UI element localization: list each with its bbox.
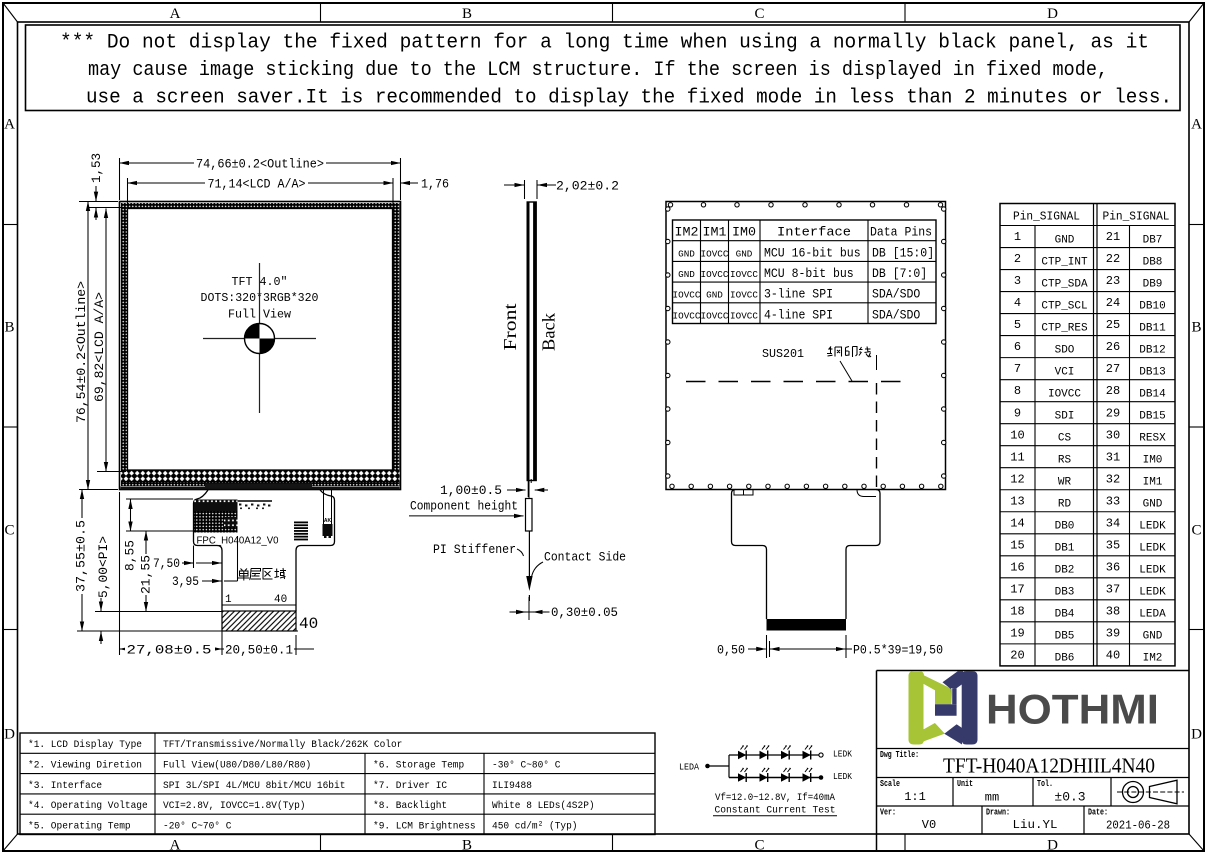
svg-text:TFT/Transmissive/Normally Blac: TFT/Transmissive/Normally Black/262K Col…: [163, 739, 402, 751]
svg-text:Interface: Interface: [777, 226, 851, 240]
svg-text:2,02±0.2: 2,02±0.2: [556, 180, 619, 194]
svg-text:2021-06-28: 2021-06-28: [1106, 819, 1170, 833]
svg-text:36: 36: [1106, 560, 1120, 574]
svg-text:A: A: [4, 117, 15, 133]
svg-text:*1. LCD Display Type: *1. LCD Display Type: [28, 739, 142, 751]
svg-text:IM1: IM1: [1143, 477, 1163, 489]
svg-text:MCU 8-bit bus: MCU 8-bit bus: [764, 267, 854, 281]
svg-text:DB14: DB14: [1139, 388, 1166, 400]
svg-text:1,53: 1,53: [90, 153, 104, 183]
svg-text:40: 40: [1106, 648, 1120, 662]
svg-text:P0.5*39=19,50: P0.5*39=19,50: [853, 644, 943, 658]
svg-text:IOVCC: IOVCC: [701, 269, 729, 280]
svg-text:1: 1: [225, 594, 232, 606]
svg-text:16: 16: [1010, 560, 1024, 574]
svg-text:-30° C~80° C: -30° C~80° C: [492, 760, 560, 772]
svg-text:DB7: DB7: [1143, 234, 1163, 246]
svg-text:1,00±0.5: 1,00±0.5: [440, 484, 502, 498]
svg-text:IOVCC: IOVCC: [730, 269, 758, 280]
svg-text:A: A: [170, 6, 181, 22]
svg-text:8,55: 8,55: [123, 540, 138, 571]
svg-text:19: 19: [1010, 626, 1024, 640]
svg-text:may cause image sticking due t: may cause image sticking due to the LCM …: [88, 59, 1108, 82]
svg-text:1: 1: [1014, 230, 1021, 244]
svg-text:Full View(U80/D80/L80/R80): Full View(U80/D80/L80/R80): [163, 760, 311, 772]
svg-text:HOTHMI: HOTHMI: [986, 686, 1159, 733]
svg-text:Drawn:: Drawn:: [986, 808, 1010, 818]
svg-text:DB10: DB10: [1139, 300, 1165, 312]
svg-text:DB9: DB9: [1143, 278, 1163, 290]
svg-text:2: 2: [1014, 252, 1021, 266]
svg-text:32: 32: [1106, 472, 1120, 486]
svg-text:DB [15:0]: DB [15:0]: [872, 246, 934, 260]
svg-text:3,95: 3,95: [172, 575, 199, 589]
svg-text:DB12: DB12: [1139, 344, 1165, 356]
svg-text:450 cd/m² (Typ): 450 cd/m² (Typ): [492, 820, 578, 832]
svg-text:5,00<PI>: 5,00<PI>: [96, 536, 111, 598]
svg-text:White 8 LEDs(4S2P): White 8 LEDs(4S2P): [492, 800, 595, 812]
svg-text:mm: mm: [985, 791, 999, 805]
svg-text:SPI 3L/SPI 4L/MCU 8bit/MCU 16b: SPI 3L/SPI 4L/MCU 8bit/MCU 16bit: [163, 780, 345, 792]
svg-text:37: 37: [1106, 582, 1120, 596]
svg-text:7,50: 7,50: [153, 557, 180, 571]
svg-text:IM0: IM0: [732, 226, 756, 240]
svg-text:27,08±0.5: 27,08±0.5: [127, 644, 212, 658]
svg-text:21: 21: [1106, 230, 1120, 244]
svg-text:*2. Viewing Diretion: *2. Viewing Diretion: [28, 760, 142, 772]
svg-text:GND: GND: [678, 248, 695, 259]
svg-text:11: 11: [1010, 450, 1024, 464]
svg-text:40: 40: [274, 594, 287, 606]
svg-text:DB13: DB13: [1139, 366, 1165, 378]
svg-text:Contact Side: Contact Side: [544, 551, 626, 565]
svg-text:CTP_RES: CTP_RES: [1041, 322, 1088, 334]
svg-text:20,50±0.1: 20,50±0.1: [225, 644, 293, 658]
svg-text:21,55: 21,55: [139, 555, 154, 594]
svg-text:V0: V0: [922, 818, 936, 832]
svg-text:LEDK: LEDK: [1139, 587, 1166, 599]
svg-text:B: B: [4, 320, 14, 336]
svg-text:LEDA: LEDA: [1139, 609, 1166, 621]
svg-text:39: 39: [1106, 626, 1120, 640]
svg-text:10: 10: [1010, 428, 1024, 442]
svg-text:DB6: DB6: [1055, 653, 1075, 665]
svg-text:37,55±0.5: 37,55±0.5: [74, 520, 89, 592]
svg-text:B: B: [1191, 320, 1201, 336]
svg-text:CTP_SDA: CTP_SDA: [1041, 278, 1088, 290]
svg-text:TFT-H040A12DHIIL4N40: TFT-H040A12DHIIL4N40: [943, 754, 1155, 778]
svg-text:GND: GND: [1143, 499, 1163, 511]
svg-text:C: C: [754, 6, 764, 22]
svg-text:Liu.YL: Liu.YL: [1013, 818, 1058, 832]
svg-text:Back: Back: [539, 313, 559, 351]
svg-text:D: D: [4, 727, 15, 743]
svg-text:SDA/SDO: SDA/SDO: [872, 288, 920, 302]
svg-text:CS: CS: [1058, 432, 1072, 444]
svg-text:AK: AK: [324, 518, 332, 524]
svg-text:use a screen saver.It is recom: use a screen saver.It is recommended to …: [86, 87, 1172, 110]
svg-text:30: 30: [1106, 428, 1120, 442]
svg-text:SDO: SDO: [1055, 344, 1075, 356]
svg-text:5: 5: [1014, 318, 1021, 332]
svg-text:17: 17: [1010, 582, 1024, 596]
svg-text:SUS201: SUS201: [762, 347, 804, 361]
svg-text:1:1: 1:1: [904, 790, 926, 804]
svg-text:LEDK: LEDK: [1139, 543, 1166, 555]
svg-text:Unit: Unit: [957, 779, 973, 789]
svg-text:GND: GND: [1143, 631, 1163, 643]
svg-text:-20° C~70° C: -20° C~70° C: [163, 820, 231, 832]
svg-text:12: 12: [1010, 472, 1024, 486]
svg-text:B: B: [462, 838, 472, 854]
svg-text:29: 29: [1106, 406, 1120, 420]
svg-text:40: 40: [299, 615, 318, 633]
svg-text:25: 25: [1106, 318, 1120, 332]
svg-text:DB0: DB0: [1055, 521, 1075, 533]
svg-text:4-line SPI: 4-line SPI: [764, 308, 833, 322]
svg-text:ILI9488: ILI9488: [492, 781, 532, 792]
svg-text:Pin_SIGNAL: Pin_SIGNAL: [1013, 211, 1080, 224]
svg-text:DB [7:0]: DB [7:0]: [872, 267, 927, 281]
svg-text:*3. Interface: *3. Interface: [28, 780, 102, 792]
svg-text:*9. LCM Brightness: *9. LCM Brightness: [373, 820, 476, 832]
svg-text:3-line SPI: 3-line SPI: [764, 288, 833, 302]
svg-text:CTP_SCL: CTP_SCL: [1041, 300, 1087, 312]
svg-text:24: 24: [1106, 296, 1120, 310]
svg-text:3: 3: [1014, 274, 1021, 288]
svg-text:MCU 16-bit bus: MCU 16-bit bus: [764, 246, 861, 260]
svg-text:74,66±0.2<Outline>: 74,66±0.2<Outline>: [196, 158, 324, 172]
svg-text:*4. Operating Voltage: *4. Operating Voltage: [28, 800, 148, 812]
svg-text:GND: GND: [1055, 234, 1075, 246]
svg-text:4: 4: [1014, 296, 1021, 310]
svg-text:IOVCC: IOVCC: [730, 310, 758, 321]
svg-text:*6. Storage Temp: *6. Storage Temp: [373, 760, 464, 772]
svg-text:RESX: RESX: [1139, 432, 1166, 444]
svg-text:26: 26: [1106, 340, 1120, 354]
svg-text:IOVCC: IOVCC: [701, 248, 729, 259]
svg-text:Front: Front: [500, 304, 520, 351]
svg-text:9: 9: [1014, 406, 1021, 420]
svg-text:DB1: DB1: [1055, 543, 1075, 555]
svg-text:Component height: Component height: [410, 500, 518, 514]
svg-text:76,54±0.2<Outline>: 76,54±0.2<Outline>: [74, 281, 89, 423]
svg-text:Constant Current Test: Constant Current Test: [715, 805, 836, 817]
svg-text:IM2: IM2: [1143, 653, 1163, 665]
svg-text:15: 15: [1010, 538, 1024, 552]
svg-text:RD: RD: [1058, 499, 1072, 511]
svg-text:CTP_INT: CTP_INT: [1041, 256, 1088, 268]
svg-text:33: 33: [1106, 494, 1120, 508]
svg-text:71,14<LCD A/A>: 71,14<LCD A/A>: [208, 178, 306, 192]
svg-text:38: 38: [1106, 604, 1120, 618]
svg-text:0,30±0.05: 0,30±0.05: [551, 606, 618, 620]
svg-text:SDA/SDO: SDA/SDO: [872, 308, 920, 322]
svg-text:6: 6: [1014, 340, 1021, 354]
svg-text:GND: GND: [706, 290, 723, 301]
svg-text:Scale: Scale: [880, 779, 900, 789]
svg-text:C: C: [754, 838, 764, 854]
svg-text:*5. Operating Temp: *5. Operating Temp: [28, 820, 131, 832]
svg-text:DB15: DB15: [1139, 410, 1165, 422]
svg-text:IM0: IM0: [1143, 455, 1163, 467]
svg-text:31: 31: [1106, 450, 1120, 464]
svg-text:Date:: Date:: [1088, 808, 1108, 818]
svg-text:*** Do not display the fixed p: *** Do not display the fixed pattern for…: [60, 32, 1149, 55]
svg-text:LEDK: LEDK: [833, 771, 852, 782]
svg-text:GND: GND: [736, 248, 753, 259]
svg-text:Vf=12.0~12.8V, If=40mA: Vf=12.0~12.8V, If=40mA: [715, 792, 836, 804]
svg-text:C: C: [4, 523, 14, 539]
svg-text:IOVCC: IOVCC: [701, 310, 729, 321]
svg-text:B: B: [462, 6, 472, 22]
svg-text:14: 14: [1010, 516, 1024, 530]
svg-text:22: 22: [1106, 252, 1120, 266]
svg-text:Tol.: Tol.: [1037, 779, 1053, 789]
svg-text:Ver:: Ver:: [880, 808, 896, 818]
svg-text:DB11: DB11: [1139, 322, 1166, 334]
svg-text:8: 8: [1014, 384, 1021, 398]
svg-text:Dwg Title:: Dwg Title:: [880, 750, 919, 760]
svg-text:A: A: [170, 838, 181, 854]
svg-text:28: 28: [1106, 384, 1120, 398]
svg-text:WR: WR: [1058, 477, 1072, 489]
svg-text:18: 18: [1010, 604, 1024, 618]
svg-text:0,50: 0,50: [717, 644, 745, 658]
svg-text:Data Pins: Data Pins: [870, 226, 932, 240]
svg-text:DB4: DB4: [1055, 609, 1075, 621]
svg-text:IOVCC: IOVCC: [673, 310, 701, 321]
svg-text:LEDK: LEDK: [1139, 565, 1166, 577]
svg-text:DB5: DB5: [1055, 631, 1075, 643]
svg-text:±0.3: ±0.3: [1054, 790, 1085, 805]
svg-text:*8. Backlight: *8. Backlight: [373, 800, 447, 812]
svg-text:Pin_SIGNAL: Pin_SIGNAL: [1103, 211, 1170, 224]
svg-text:D: D: [1191, 727, 1202, 743]
svg-text:23: 23: [1106, 274, 1120, 288]
svg-text:35: 35: [1106, 538, 1120, 552]
svg-text:VCI: VCI: [1055, 366, 1075, 378]
svg-text:VCI=2.8V, IOVCC=1.8V(Typ): VCI=2.8V, IOVCC=1.8V(Typ): [163, 800, 306, 812]
svg-text:7: 7: [1014, 362, 1021, 376]
svg-text:34: 34: [1106, 516, 1120, 530]
svg-text:IOVCC: IOVCC: [730, 290, 758, 301]
svg-text:LEDK: LEDK: [1139, 521, 1166, 533]
svg-text:SDI: SDI: [1055, 410, 1075, 422]
svg-text:27: 27: [1106, 362, 1120, 376]
svg-text:D: D: [1047, 838, 1058, 854]
svg-text:69,82<LCD A/A>: 69,82<LCD A/A>: [92, 292, 107, 402]
svg-text:C: C: [1191, 523, 1201, 539]
svg-text:LEDA: LEDA: [679, 762, 699, 773]
svg-text:1,76: 1,76: [421, 178, 449, 192]
svg-text:DB8: DB8: [1143, 256, 1163, 268]
svg-text:A: A: [1191, 117, 1202, 133]
svg-text:GND: GND: [678, 269, 695, 280]
svg-text:LEDK: LEDK: [833, 749, 852, 760]
svg-text:D: D: [1047, 6, 1058, 22]
svg-text:PI Stiffener: PI Stiffener: [433, 543, 516, 557]
svg-text:IOVCC: IOVCC: [1048, 388, 1081, 400]
svg-text:IM1: IM1: [703, 226, 727, 240]
svg-text:IOVCC: IOVCC: [673, 290, 701, 301]
svg-text:*7. Driver IC: *7. Driver IC: [373, 780, 447, 792]
svg-text:DB3: DB3: [1055, 587, 1075, 599]
svg-text:RS: RS: [1058, 455, 1072, 467]
svg-text:DB2: DB2: [1055, 565, 1075, 577]
svg-text:20: 20: [1010, 648, 1024, 662]
svg-text:13: 13: [1010, 494, 1024, 508]
svg-text:IM2: IM2: [675, 226, 699, 240]
